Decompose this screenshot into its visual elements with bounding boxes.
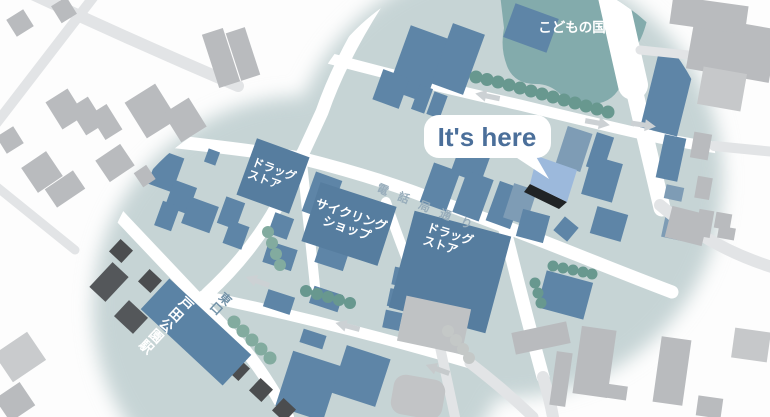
tree-icon bbox=[266, 237, 278, 249]
tree-icon bbox=[514, 82, 527, 95]
building bbox=[697, 66, 747, 111]
tree-icon bbox=[463, 352, 475, 364]
tree-icon bbox=[547, 91, 560, 104]
tree-icon bbox=[602, 106, 615, 119]
tree-icon bbox=[470, 71, 483, 84]
tree-icon bbox=[481, 73, 494, 86]
road bbox=[612, 0, 633, 85]
tree-icon bbox=[580, 100, 593, 113]
tree-icon bbox=[530, 278, 541, 289]
map-illustration: こどもの国 ドラッグ ストア サイクリング ショップ ドラッグ ストア 電話局通… bbox=[0, 0, 770, 417]
tree-icon bbox=[536, 88, 549, 101]
tree-icon bbox=[548, 261, 559, 272]
tree-icon bbox=[262, 226, 274, 238]
tree-icon bbox=[536, 298, 547, 309]
park-label: こどもの国 bbox=[538, 20, 606, 35]
road bbox=[714, 146, 770, 152]
building bbox=[696, 395, 724, 417]
tree-icon bbox=[322, 291, 334, 303]
tree-icon bbox=[591, 103, 604, 116]
tree-icon bbox=[274, 259, 286, 271]
tree-icon bbox=[587, 269, 598, 280]
tree-icon bbox=[569, 97, 582, 110]
tree-icon bbox=[503, 79, 516, 92]
tree-icon bbox=[264, 352, 277, 365]
tree-icon bbox=[344, 297, 356, 309]
tree-icon bbox=[533, 288, 544, 299]
tree-icon bbox=[525, 85, 538, 98]
tree-icon bbox=[311, 288, 323, 300]
access-map: こどもの国 ドラッグ ストア サイクリング ショップ ドラッグ ストア 電話局通… bbox=[0, 0, 770, 417]
tree-icon bbox=[270, 248, 282, 260]
tree-icon bbox=[558, 94, 571, 107]
building bbox=[731, 328, 770, 363]
tree-icon bbox=[492, 76, 505, 89]
tree-icon bbox=[558, 263, 569, 274]
tree-icon bbox=[568, 265, 579, 276]
tree-icon bbox=[442, 325, 454, 337]
tree-icon bbox=[300, 285, 312, 297]
tree-icon bbox=[333, 294, 345, 306]
callout-text: It's here bbox=[438, 122, 537, 152]
